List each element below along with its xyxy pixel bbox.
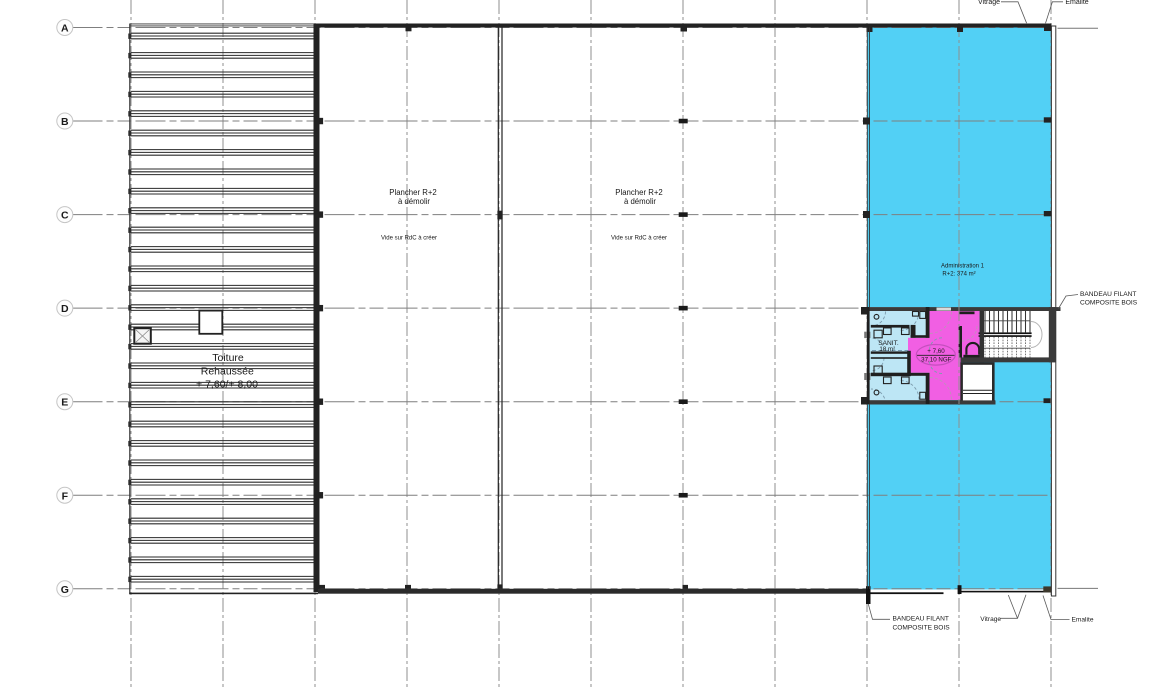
svg-text:BANDEAU FILANT: BANDEAU FILANT	[893, 616, 949, 623]
svg-text:Vide sur RdC à créer: Vide sur RdC à créer	[611, 236, 667, 242]
svg-text:Plancher R+2: Plancher R+2	[615, 188, 662, 197]
svg-text:COMPOSITE BOIS: COMPOSITE BOIS	[893, 625, 951, 632]
svg-text:Vitrage: Vitrage	[978, 0, 1000, 6]
svg-text:A: A	[61, 23, 69, 35]
svg-text:18 m²: 18 m²	[879, 346, 895, 353]
svg-text:à démolir: à démolir	[398, 197, 430, 206]
svg-text:BANDEAU FILANT: BANDEAU FILANT	[1080, 291, 1136, 298]
svg-text:R+2: 374 m²: R+2: 374 m²	[942, 271, 975, 277]
svg-text:+ 7,60: + 7,60	[927, 348, 945, 355]
svg-text:E: E	[61, 397, 68, 409]
svg-text:Vide sur RdC à créer: Vide sur RdC à créer	[381, 236, 437, 242]
svg-text:D: D	[61, 303, 69, 315]
svg-text:+ 7,60/+ 8,00: + 7,60/+ 8,00	[196, 379, 258, 391]
svg-text:à démolir: à démolir	[624, 197, 656, 206]
svg-text:Rehaussée: Rehaussée	[201, 365, 254, 377]
svg-text:F: F	[62, 490, 69, 502]
svg-text:Plancher R+2: Plancher R+2	[389, 188, 436, 197]
svg-text:Emalite: Emalite	[1065, 0, 1088, 6]
svg-text:C: C	[61, 210, 69, 222]
svg-text:Emalite: Emalite	[1072, 617, 1094, 624]
svg-text:37,10 NGF: 37,10 NGF	[921, 356, 951, 363]
svg-text:B: B	[61, 116, 69, 128]
svg-text:Toiture: Toiture	[212, 352, 244, 364]
svg-text:Administration 1: Administration 1	[941, 264, 985, 270]
svg-text:G: G	[61, 584, 69, 596]
svg-text:Vitrage: Vitrage	[980, 616, 1001, 623]
svg-text:COMPOSITE BOIS: COMPOSITE BOIS	[1080, 300, 1138, 307]
